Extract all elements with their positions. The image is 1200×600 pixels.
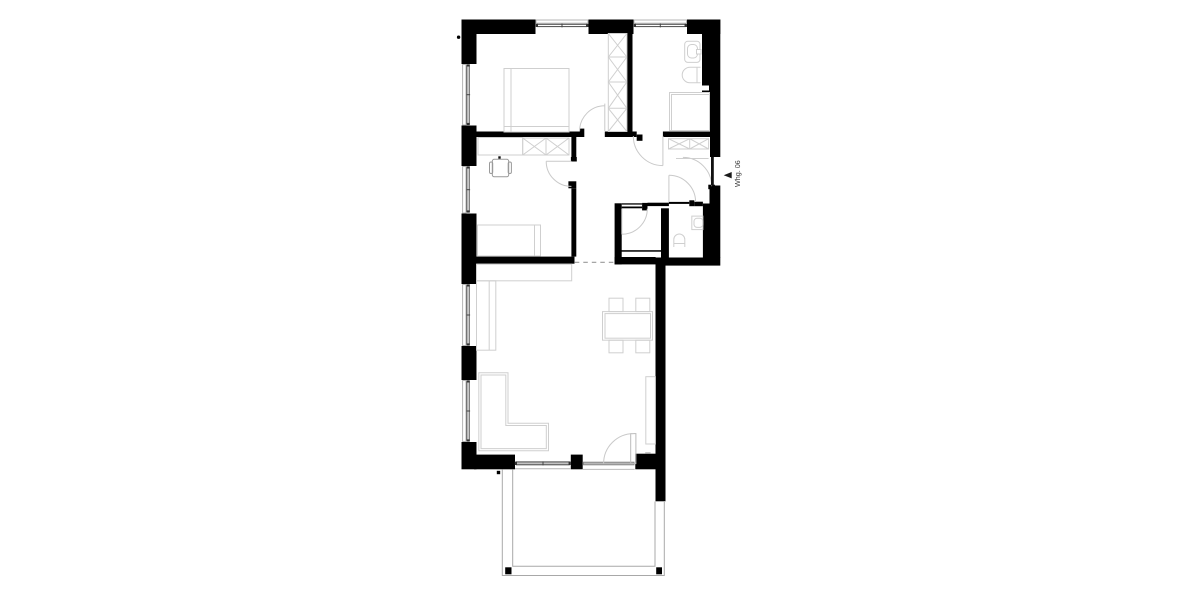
svg-text:Whg. 06: Whg. 06 <box>733 160 742 187</box>
